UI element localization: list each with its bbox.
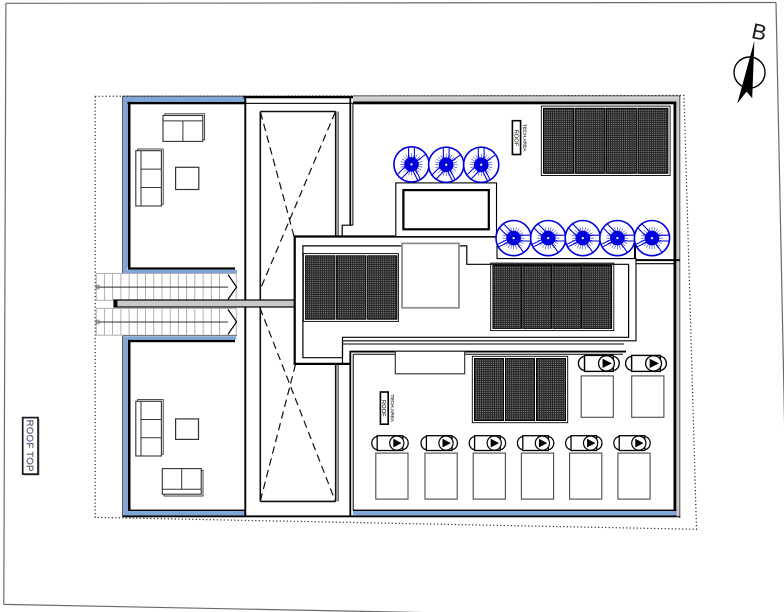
svg-text:TECH.AREA: TECH.AREA [521, 124, 527, 152]
svg-text:ROOF: ROOF [512, 130, 518, 147]
svg-text:ROOF: ROOF [380, 400, 386, 417]
svg-text:ROOF TOP: ROOF TOP [24, 419, 35, 471]
svg-text:TECH.AREA: TECH.AREA [389, 394, 395, 422]
